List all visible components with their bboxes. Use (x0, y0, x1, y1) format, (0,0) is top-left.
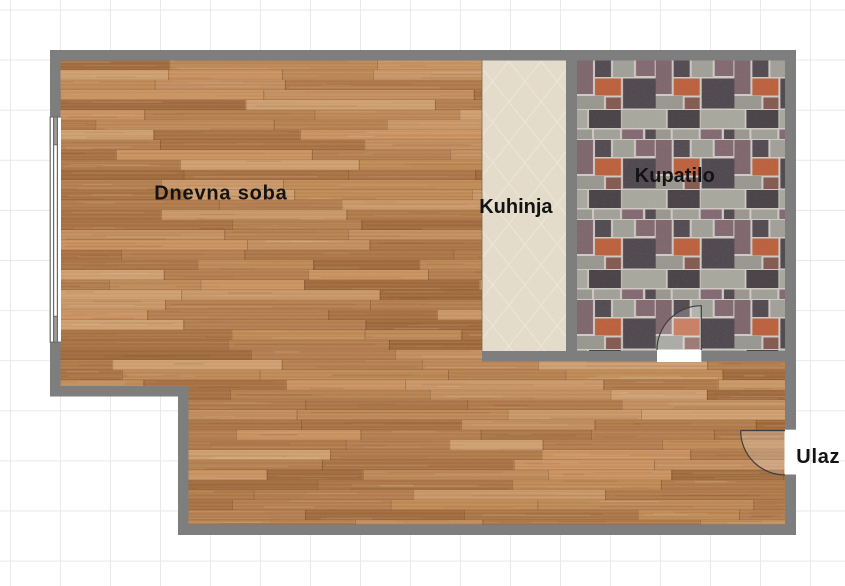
svg-text:Kuhinja: Kuhinja (479, 196, 553, 218)
svg-text:Kupatilo: Kupatilo (635, 165, 715, 187)
svg-text:Dnevna soba: Dnevna soba (154, 182, 287, 204)
svg-text:Ulaz: Ulaz (796, 446, 840, 468)
